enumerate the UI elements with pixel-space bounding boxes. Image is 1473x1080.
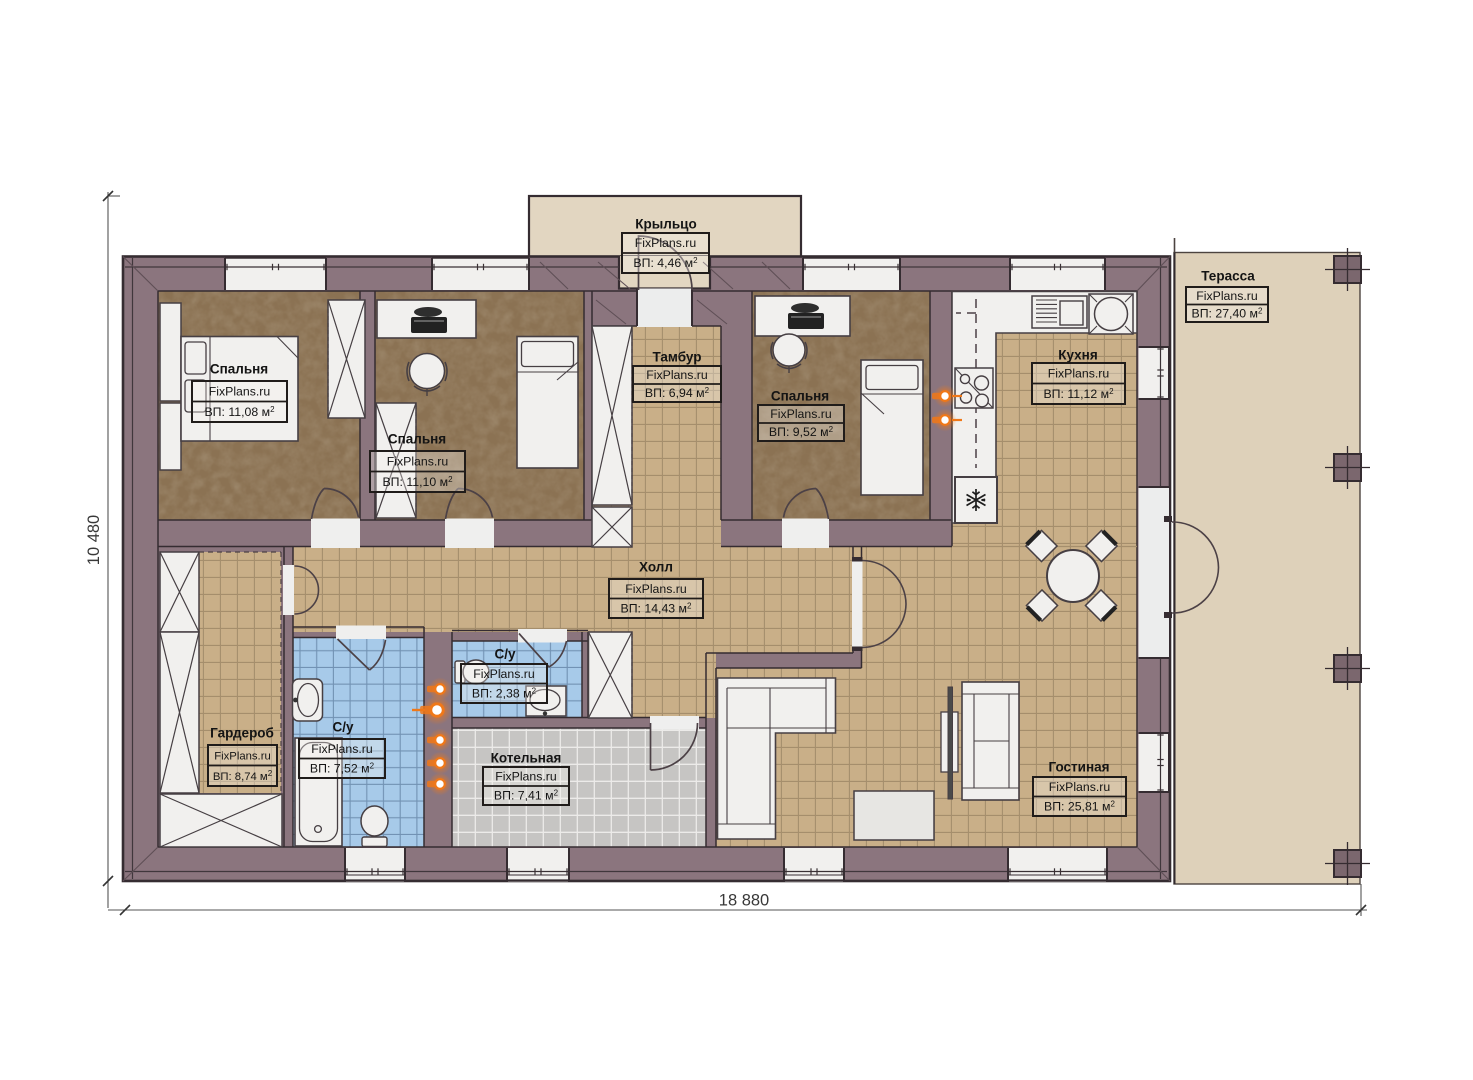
svg-text:Спальня: Спальня (210, 362, 268, 377)
svg-text:ВП: 7,52 м2: ВП: 7,52 м2 (310, 761, 375, 775)
svg-text:FixPlans.ru: FixPlans.ru (1049, 780, 1111, 794)
svg-text:FixPlans.ru: FixPlans.ru (387, 454, 449, 468)
svg-text:ВП: 11,08 м2: ВП: 11,08 м2 (204, 405, 275, 419)
svg-text:FixPlans.ru: FixPlans.ru (214, 750, 271, 762)
svg-text:FixPlans.ru: FixPlans.ru (209, 384, 271, 398)
svg-text:Кухня: Кухня (1058, 348, 1097, 363)
svg-text:С/у: С/у (494, 647, 516, 662)
svg-text:ВП: 2,38 м2: ВП: 2,38 м2 (472, 686, 537, 700)
svg-text:ВП: 7,41 м2: ВП: 7,41 м2 (494, 789, 559, 803)
svg-text:Терасса: Терасса (1201, 269, 1255, 284)
svg-text:Гостиная: Гостиная (1048, 760, 1109, 775)
svg-text:FixPlans.ru: FixPlans.ru (770, 407, 832, 421)
svg-text:FixPlans.ru: FixPlans.ru (495, 770, 557, 784)
svg-text:С/у: С/у (332, 720, 354, 735)
svg-text:Крыльцо: Крыльцо (635, 217, 696, 232)
svg-text:ВП: 9,52 м2: ВП: 9,52 м2 (769, 425, 834, 439)
svg-text:ВП: 25,81 м2: ВП: 25,81 м2 (1044, 799, 1116, 813)
svg-text:Тамбур: Тамбур (653, 350, 702, 365)
svg-text:ВП: 11,12 м2: ВП: 11,12 м2 (1043, 387, 1114, 401)
svg-text:18 880: 18 880 (719, 892, 769, 910)
svg-text:Гардероб: Гардероб (210, 726, 274, 741)
svg-text:ВП: 4,46 м2: ВП: 4,46 м2 (633, 256, 698, 270)
svg-text:FixPlans.ru: FixPlans.ru (311, 742, 373, 756)
svg-text:FixPlans.ru: FixPlans.ru (646, 368, 708, 382)
svg-text:FixPlans.ru: FixPlans.ru (635, 236, 697, 250)
svg-text:10 480: 10 480 (85, 515, 103, 565)
svg-text:ВП: 11,10 м2: ВП: 11,10 м2 (382, 475, 453, 489)
svg-text:ВП: 27,40 м2: ВП: 27,40 м2 (1192, 306, 1264, 320)
svg-text:FixPlans.ru: FixPlans.ru (625, 582, 687, 596)
svg-text:Котельная: Котельная (491, 751, 562, 766)
svg-text:ВП: 8,74 м2: ВП: 8,74 м2 (213, 769, 273, 783)
svg-text:ВП: 14,43 м2: ВП: 14,43 м2 (621, 601, 693, 615)
svg-text:FixPlans.ru: FixPlans.ru (1196, 289, 1258, 303)
svg-text:FixPlans.ru: FixPlans.ru (1048, 366, 1110, 380)
svg-text:Спальня: Спальня (771, 389, 829, 404)
svg-text:Спальня: Спальня (388, 432, 446, 447)
svg-text:Холл: Холл (639, 560, 673, 575)
svg-text:FixPlans.ru: FixPlans.ru (473, 667, 535, 681)
svg-text:ВП: 6,94 м2: ВП: 6,94 м2 (645, 386, 710, 400)
